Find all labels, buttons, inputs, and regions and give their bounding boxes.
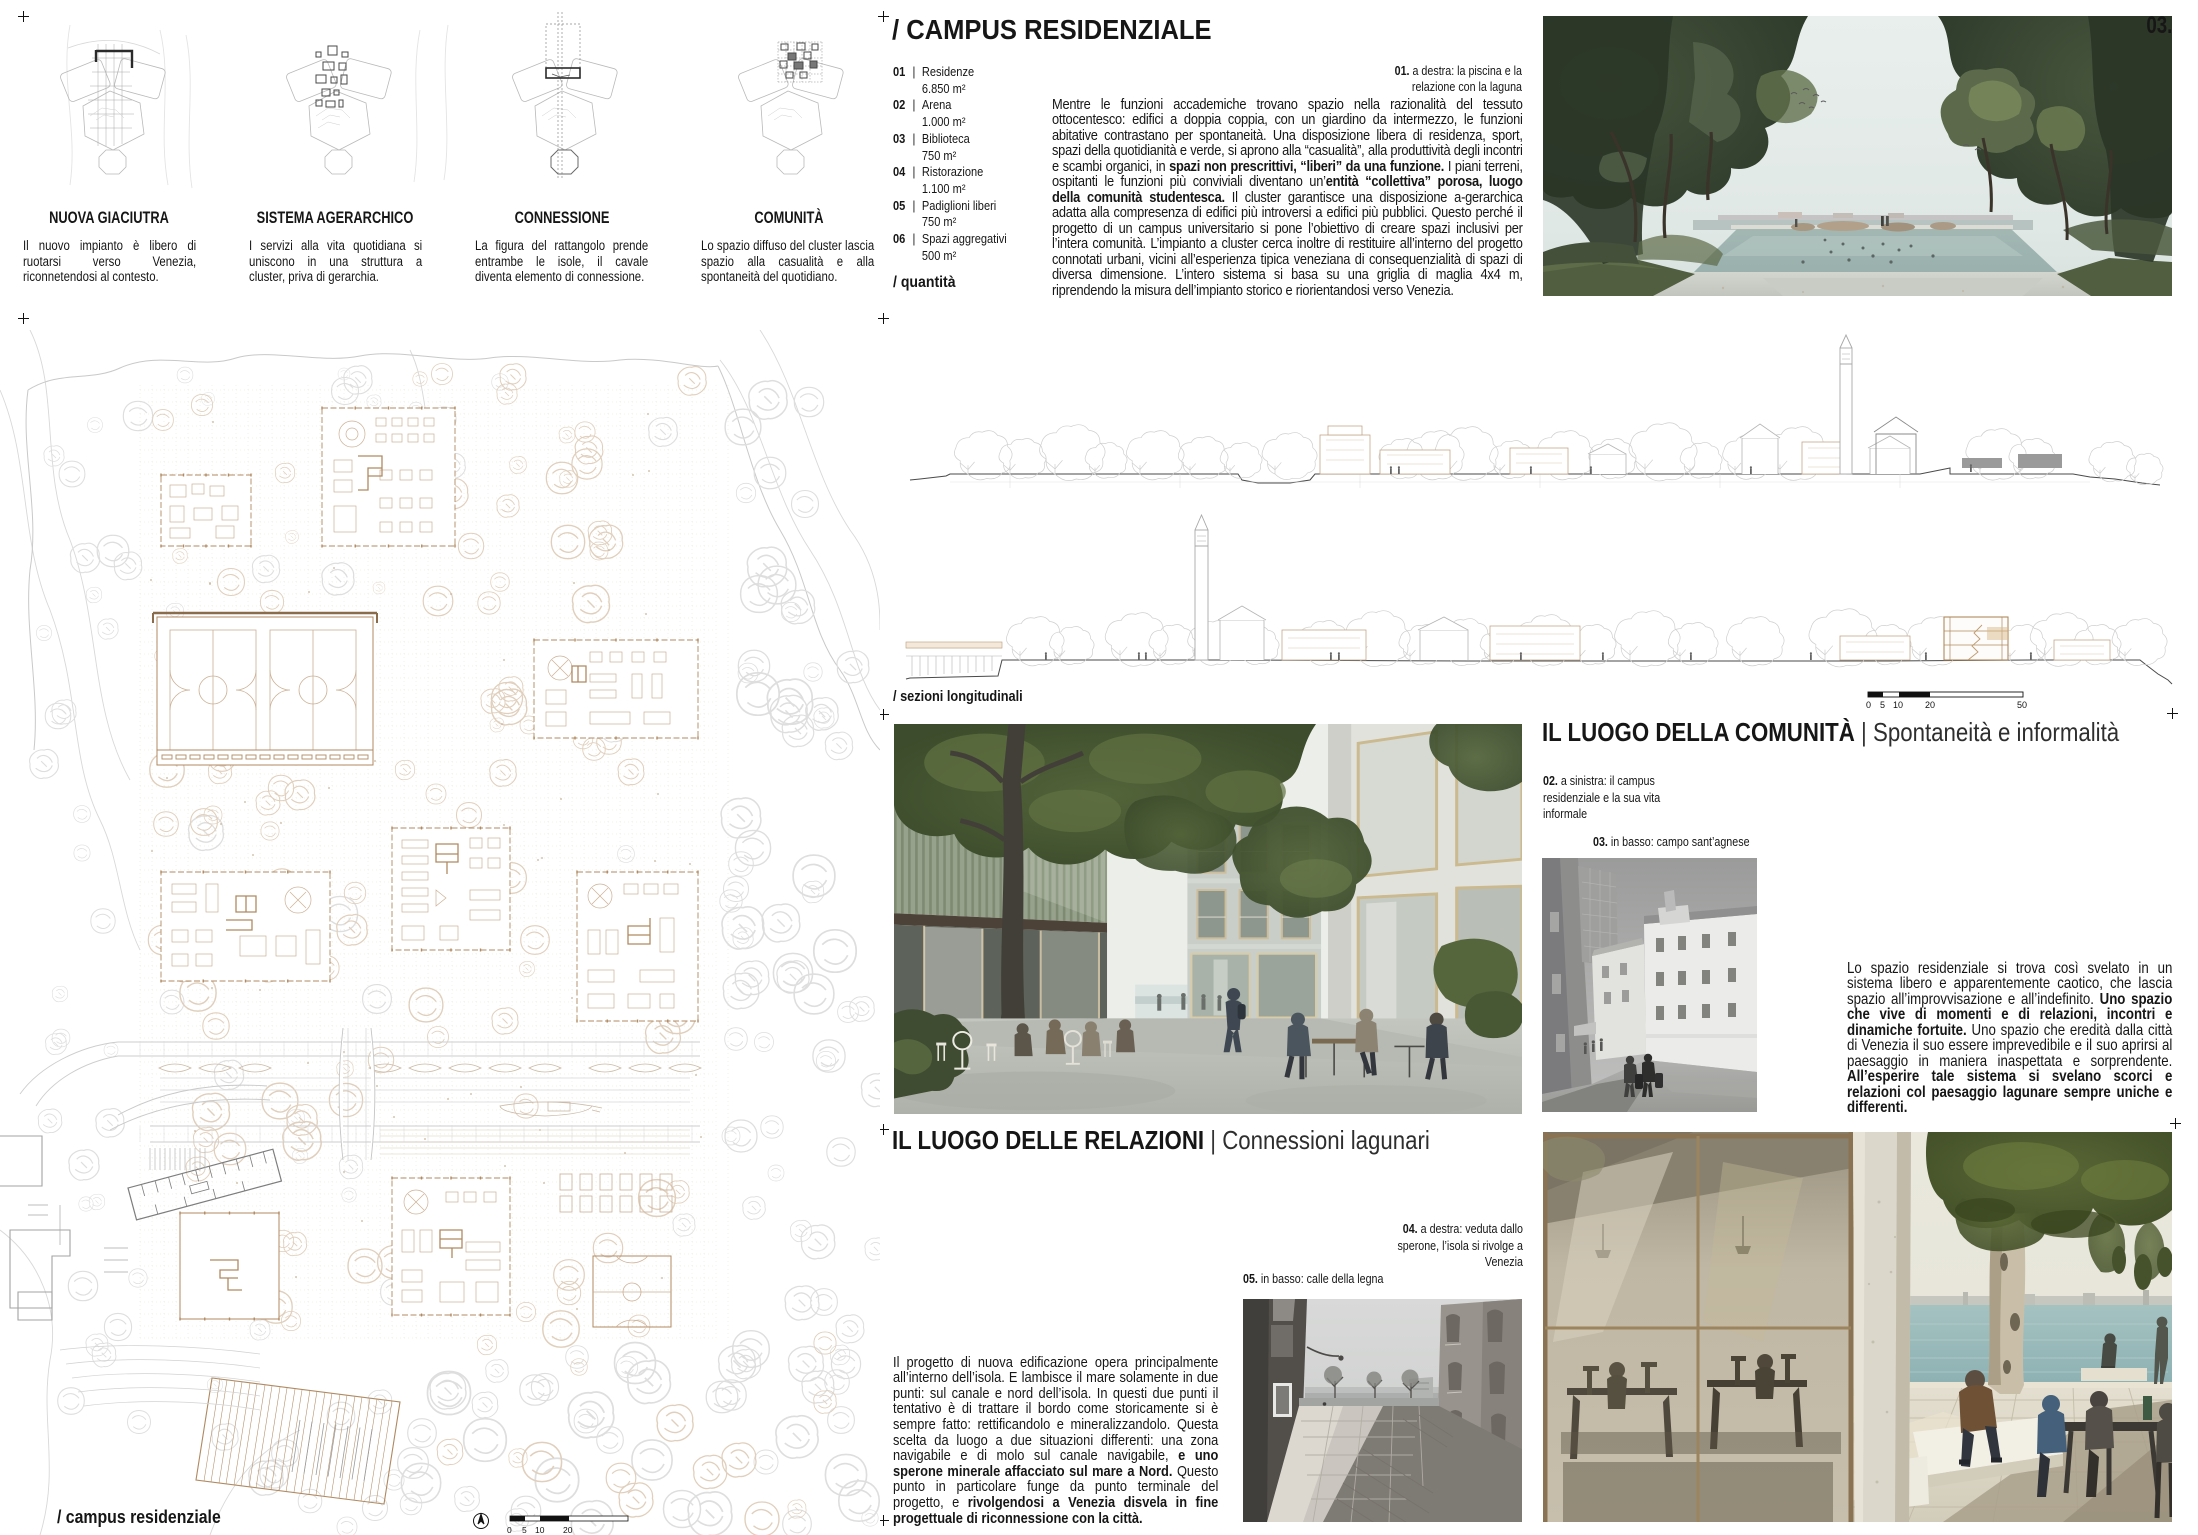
- svg-text:20: 20: [1925, 700, 1935, 710]
- svg-text:20: 20: [563, 1525, 573, 1535]
- svg-text:0: 0: [507, 1525, 512, 1535]
- svg-text:10: 10: [1893, 700, 1903, 710]
- svg-text:0: 0: [1866, 700, 1871, 710]
- svg-text:5: 5: [522, 1525, 527, 1535]
- svg-text:10: 10: [535, 1525, 545, 1535]
- svg-text:50: 50: [2017, 700, 2027, 710]
- svg-text:5: 5: [1880, 700, 1885, 710]
